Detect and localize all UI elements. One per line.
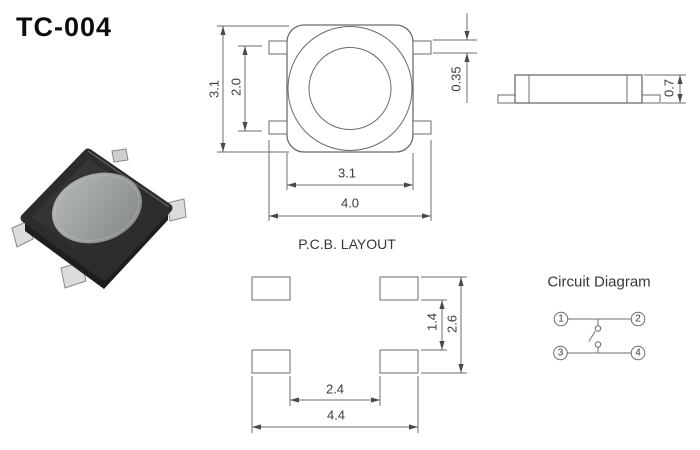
pcb-pad-top-right (380, 277, 418, 300)
technical-drawing-linework (0, 0, 700, 450)
dim-label-top-view-overall-width: 4.0 (341, 196, 359, 211)
pcb-layout-title: P.C.B. LAYOUT (298, 236, 396, 252)
top-view-drawing (217, 13, 477, 221)
pcb-pad-bottom-right (380, 350, 418, 373)
top-view-pad-bottom-left (269, 121, 287, 134)
side-view-lead-right (642, 95, 660, 103)
dim-label-pcb-inner-gap-v: 1.4 (425, 313, 440, 331)
circuit-pin2-label: 2 (635, 314, 641, 325)
dim-label-top-view-lead-thickness: 0.35 (449, 66, 464, 91)
top-view-pad-top-right (413, 41, 431, 54)
pcb-pad-top-left (252, 277, 290, 300)
dim-label-pcb-inner-gap-h: 2.4 (326, 382, 344, 397)
top-view-pad-top-left (269, 41, 287, 54)
pcb-pad-bottom-left (252, 350, 290, 373)
dim-label-top-view-lead-span: 2.0 (229, 78, 244, 96)
circuit-contact-bottom (595, 342, 600, 347)
switch-leg-top-right (112, 149, 128, 162)
dim-label-pcb-outer-span-h: 4.4 (327, 408, 345, 423)
side-view-body (515, 75, 642, 103)
pcb-layout-drawing (252, 277, 467, 433)
side-view-lead-left (498, 95, 515, 103)
dim-label-side-view-height: 0.7 (662, 79, 677, 97)
product-photo (12, 149, 186, 289)
dim-label-top-view-body-width: 3.1 (338, 166, 356, 181)
part-number-title: TC-004 (16, 12, 112, 43)
top-view-button-inner-circle (309, 48, 391, 130)
datasheet-page: TC-004 P.C.B. LAYOUT Circuit Diagram 3.1… (0, 0, 700, 450)
side-view-drawing (498, 75, 686, 103)
dim-label-top-view-outer-height: 3.1 (207, 80, 222, 98)
circuit-pin1-label: 1 (558, 314, 564, 325)
circuit-pin3-label: 3 (558, 348, 564, 359)
top-view-pad-bottom-right (413, 121, 431, 134)
circuit-diagram-drawing (554, 312, 645, 360)
circuit-diagram-title: Circuit Diagram (547, 274, 650, 291)
switch-lever-line (589, 331, 595, 341)
circuit-pin4-label: 4 (635, 348, 641, 359)
dim-label-pcb-outer-span-v: 2.6 (445, 315, 460, 333)
circuit-contact-top (595, 326, 600, 331)
